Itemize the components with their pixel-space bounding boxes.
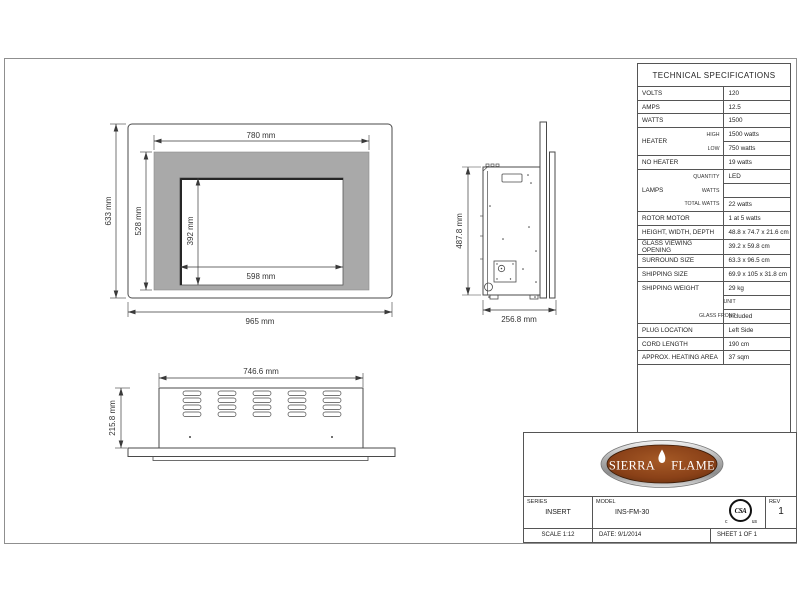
table-row: APPROX. HEATING AREA37 sqm — [638, 351, 790, 365]
surround-flange-edge — [550, 152, 556, 298]
dim-top-depth-label: 215.8 mm — [108, 400, 117, 436]
scale-cell: SCALE 1:12 — [524, 529, 593, 543]
dim-opening-height-label: 392 mm — [186, 216, 195, 245]
group-label-shipping-weight: SHIPPING WEIGHT — [638, 282, 699, 292]
csa-certification-icon: CSA c us — [727, 499, 755, 526]
series-value: INSERT — [524, 509, 592, 516]
dim-side-depth: 256.8 mm — [483, 300, 556, 324]
dim-overall-width: 965 mm — [128, 302, 392, 326]
feet — [490, 295, 538, 299]
glass-front-edge — [153, 457, 368, 461]
dim-side-depth-label: 256.8 mm — [501, 315, 537, 324]
table-row: HEATER HIGH LOW 1500 watts — [638, 128, 790, 142]
dim-opening-width-label: 598 mm — [247, 272, 276, 281]
table-row: VOLTS120 — [638, 87, 790, 101]
date-cell: DATE: 9/1/2014 — [593, 529, 711, 543]
specs-table: TECHNICAL SPECIFICATIONS VOLTS120 AMPS12… — [638, 64, 790, 365]
dim-side-height: 487.8 mm — [455, 167, 481, 295]
table-row: GLASS VIEWING OPENING39.2 x 59.8 cm — [638, 239, 790, 254]
dim-overall-height: 633 mm — [104, 124, 126, 298]
spec-sheet-page: { "front_view": { "surround_width": "780… — [0, 0, 800, 600]
specs-title: TECHNICAL SPECIFICATIONS — [638, 64, 790, 87]
rev-label: REV — [766, 497, 796, 505]
table-row: WATTS1500 — [638, 114, 790, 128]
rev-value: 1 — [766, 506, 796, 517]
title-block: SIERRA FLAME SERIES INSERT MODEL INS-FM-… — [523, 432, 797, 543]
title-block-data-row: SERIES INSERT MODEL INS-FM-30 CSA c us R… — [524, 497, 796, 529]
top-view-drawing: 746.6 mm 215.8 mm — [95, 358, 410, 470]
dim-top-width-label: 746.6 mm — [243, 367, 279, 376]
table-row: CORD LENGTH190 cm — [638, 337, 790, 351]
series-label: SERIES — [524, 497, 592, 505]
title-block-footer-row: SCALE 1:12 DATE: 9/1/2014 SHEET 1 OF 1 — [524, 529, 796, 543]
rev-cell: REV 1 — [766, 497, 796, 528]
viewing-opening — [180, 178, 343, 285]
dim-surround-width-label: 780 mm — [247, 131, 276, 140]
logo-text-sierra: SIERRA — [609, 459, 655, 473]
front-view-drawing: 780 mm 598 mm 392 mm 528 mm 633 mm 965 m… — [90, 105, 405, 340]
series-cell: SERIES INSERT — [524, 497, 593, 528]
side-view-drawing: 487.8 mm 256.8 mm — [450, 112, 580, 332]
group-label-heater: HEATER — [638, 138, 667, 145]
dim-overall-width-label: 965 mm — [246, 317, 275, 326]
table-row: HEIGHT, WIDTH, DEPTH48.8 x 74.7 x 21.6 c… — [638, 225, 790, 239]
model-cell: MODEL INS-FM-30 CSA c us — [593, 497, 766, 528]
dim-surround-height-label: 528 mm — [134, 206, 143, 235]
logo-text-flame: FLAME — [671, 459, 715, 473]
dim-overall-height-label: 633 mm — [104, 196, 113, 225]
table-row: NO HEATER19 watts — [638, 156, 790, 170]
table-row: ROTOR MOTOR1 at 5 watts — [638, 212, 790, 226]
group-label-lamps: LAMPS — [638, 187, 663, 194]
dim-side-height-label: 487.8 mm — [455, 213, 464, 249]
table-row: LAMPS QUANTITY WATTS TOTAL WATTS LED — [638, 170, 790, 184]
dim-top-depth: 215.8 mm — [108, 388, 130, 448]
table-row: SURROUND SIZE63.3 x 96.5 cm — [638, 254, 790, 268]
top-body — [159, 388, 363, 448]
sierra-flame-logo: SIERRA FLAME — [599, 439, 725, 489]
table-row: SHIPPING SIZE69.9 x 105 x 31.8 cm — [638, 268, 790, 282]
firebox-body — [483, 167, 540, 295]
top-clips — [486, 164, 499, 167]
table-row: SHIPPING WEIGHT UNIT GLASS FRONT 29 kg — [638, 281, 790, 295]
table-row: AMPS12.5 — [638, 100, 790, 114]
back-panel-edge — [540, 122, 547, 298]
specs-panel: TECHNICAL SPECIFICATIONS VOLTS120 AMPS12… — [637, 63, 791, 432]
sheet-number-cell: SHEET 1 OF 1 — [711, 529, 796, 543]
table-row: PLUG LOCATIONLeft Side — [638, 324, 790, 338]
logo-cell: SIERRA FLAME — [524, 433, 796, 497]
dim-top-width: 746.6 mm — [159, 367, 363, 387]
surround-plate-edge — [128, 448, 395, 457]
